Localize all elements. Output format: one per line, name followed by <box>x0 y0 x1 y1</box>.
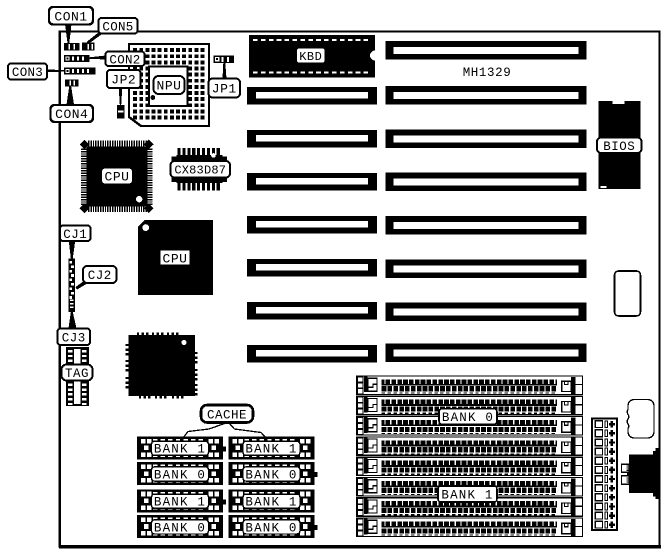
svg-text:BANK 1: BANK 1 <box>245 443 297 457</box>
svg-text:BANK 0: BANK 0 <box>245 468 297 482</box>
svg-text:BANK 0: BANK 0 <box>154 521 206 535</box>
svg-text:MH1329: MH1329 <box>463 66 512 80</box>
svg-text:BANK 0: BANK 0 <box>245 521 297 535</box>
svg-text:CON3: CON3 <box>12 66 43 80</box>
svg-text:CJ3: CJ3 <box>62 331 86 345</box>
svg-text:KBD: KBD <box>299 50 322 64</box>
svg-text:BIOS: BIOS <box>603 140 635 154</box>
svg-text:BANK 1: BANK 1 <box>441 489 493 503</box>
svg-text:BANK 1: BANK 1 <box>154 443 206 457</box>
svg-text:TAG: TAG <box>65 367 89 381</box>
svg-text:CX83D87: CX83D87 <box>174 164 226 178</box>
svg-text:NPU: NPU <box>157 79 182 94</box>
svg-text:CON1: CON1 <box>54 9 87 24</box>
svg-text:BANK 0: BANK 0 <box>154 468 206 482</box>
svg-text:BANK 1: BANK 1 <box>245 496 297 510</box>
svg-text:CACHE: CACHE <box>207 408 247 422</box>
svg-text:CPU: CPU <box>105 170 130 185</box>
svg-text:CON4: CON4 <box>55 107 88 122</box>
svg-text:BANK 0: BANK 0 <box>442 411 494 425</box>
svg-text:CON2: CON2 <box>109 53 140 67</box>
svg-text:BANK 1: BANK 1 <box>154 496 206 510</box>
svg-text:CON5: CON5 <box>102 20 133 34</box>
svg-text:CJ2: CJ2 <box>88 269 112 283</box>
svg-text:JP1: JP1 <box>212 82 237 97</box>
svg-text:JP2: JP2 <box>111 73 136 88</box>
svg-text:CPU: CPU <box>163 252 188 267</box>
svg-text:CJ1: CJ1 <box>63 228 87 242</box>
